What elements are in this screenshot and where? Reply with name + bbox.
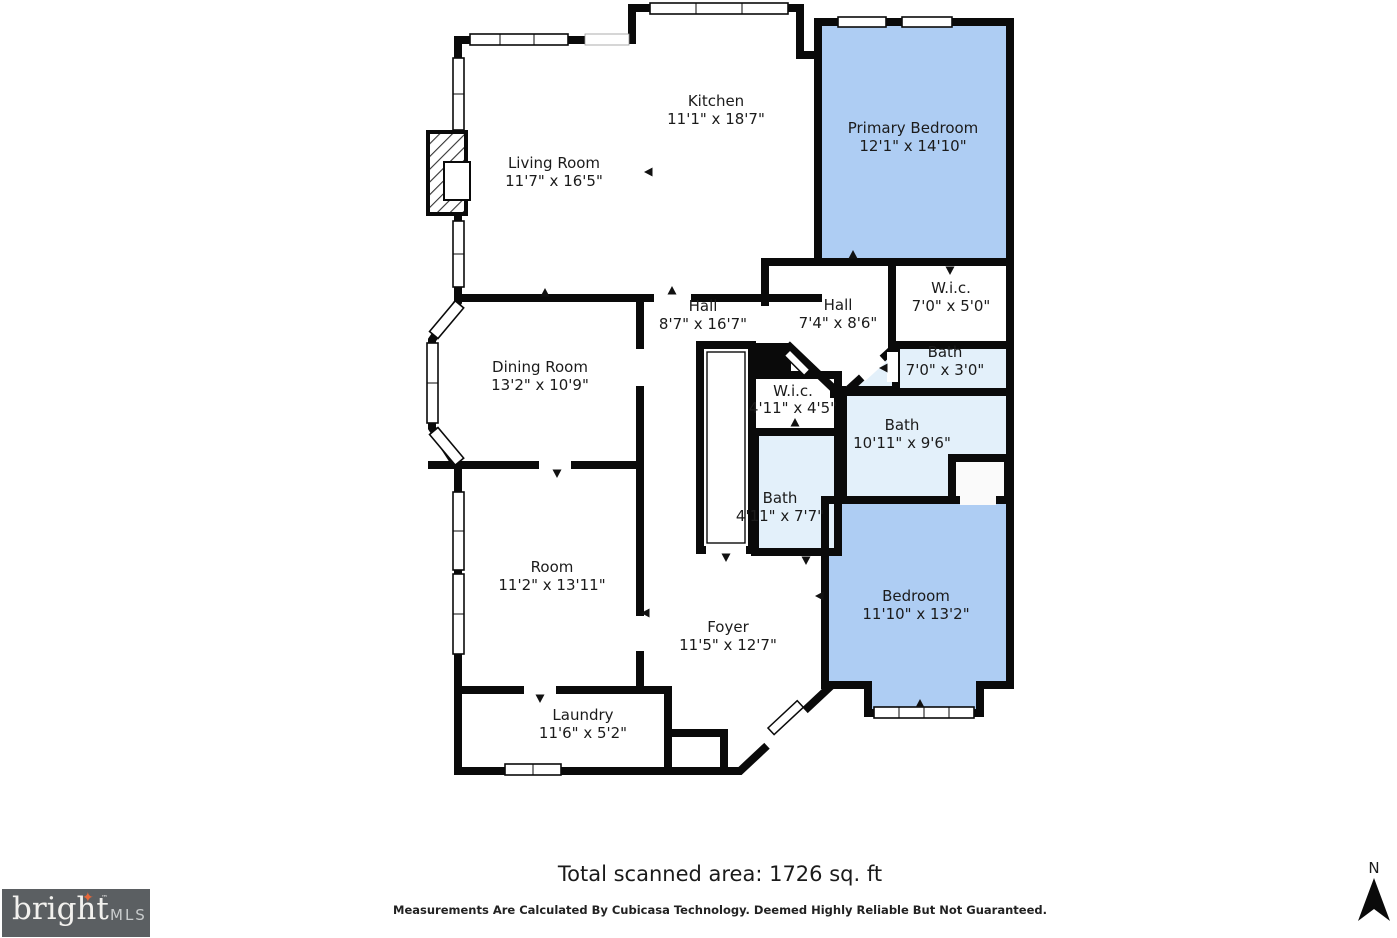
room-dims: 10'11" x 9'6" [853,434,951,452]
room-name: Laundry [552,706,613,724]
bedroom-closet [952,458,1008,500]
logo-star-icon: ✦ [82,890,94,906]
room-dims: 11'10" x 13'2" [862,605,969,623]
logo-inner: bright ✦ ™ MLS [2,889,150,937]
disclaimer-text: Measurements Are Calculated By Cubicasa … [393,903,1047,917]
room-dims: 11'5" x 12'7" [679,636,777,654]
room-dims: 7'0" x 5'0" [912,297,991,315]
room-name: Bath [763,489,798,507]
total-scanned-area: Total scanned area: 1726 sq. ft [557,862,882,886]
floorplan-page: Kitchen 11'1" x 18'7" Living Room 11'7" … [0,0,1397,938]
room-dims: 13'2" x 10'9" [491,376,589,394]
room-dims: 11'2" x 13'11" [498,576,605,594]
room-dims: 7'0" x 3'0" [906,361,985,379]
logo-brand-text: bright [12,891,109,927]
room-name: Hall [689,297,718,315]
bright-mls-logo: bright ✦ ™ MLS [2,889,150,937]
room-name: Kitchen [688,92,744,110]
room-name: W.i.c. [931,279,971,297]
entry-stoop [668,733,724,771]
room-dims: 4'11" x 7'7" [736,507,824,525]
room-name: Dining Room [492,358,588,376]
room-name: Bath [928,343,963,361]
fireplace [428,132,470,214]
room-name: Primary Bedroom [848,119,979,137]
north-compass: N [1358,859,1390,921]
room-name: W.i.c. [773,382,813,400]
room-name: Room [531,558,574,576]
room-label-primary-bedroom: Primary Bedroom 12'1" x 14'10" [848,119,979,155]
logo-mls-text: MLS [110,906,147,924]
room-name: Foyer [707,618,749,636]
room-dims: 12'1" x 14'10" [859,137,966,155]
room-name: Bath [885,416,920,434]
room-name: Bedroom [882,587,950,605]
north-arrow-icon [1358,878,1390,921]
room-dims: 8'7" x 16'7" [659,315,747,333]
room-dims: 4'11" x 4'5" [749,399,837,417]
room-name: Hall [824,296,853,314]
north-label: N [1368,859,1379,877]
room-name: Living Room [508,154,600,172]
room-label-living-room: Living Room 11'7" x 16'5" [505,154,603,190]
logo-trademark: ™ [101,894,108,902]
room-dims: 11'7" x 16'5" [505,172,603,190]
floorplan-svg: Kitchen 11'1" x 18'7" Living Room 11'7" … [0,0,1397,938]
room-dims: 11'1" x 18'7" [667,110,765,128]
room-dims: 7'4" x 8'6" [799,314,878,332]
room-dims: 11'6" x 5'2" [539,724,627,742]
room-label-dining-room: Dining Room 13'2" x 10'9" [491,358,589,394]
